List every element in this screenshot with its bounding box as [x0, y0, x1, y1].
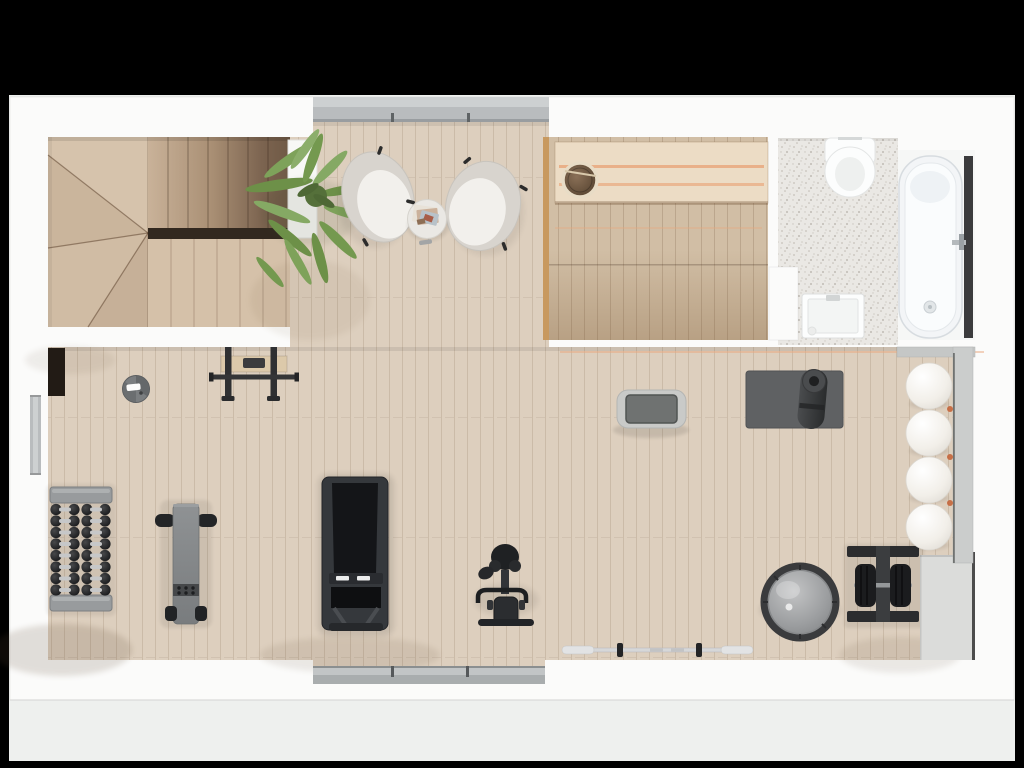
bath-wall-block — [769, 267, 798, 340]
wall-shadow — [313, 122, 549, 126]
wall-shadow — [48, 137, 52, 327]
window-mullion — [391, 666, 394, 677]
gym — [0, 346, 984, 684]
bathtub — [898, 150, 975, 340]
stair-gap — [148, 228, 290, 239]
yoga-mat — [746, 368, 843, 430]
stability-ball — [906, 457, 952, 503]
wall-shadow — [48, 347, 920, 351]
corner-platform — [920, 552, 975, 660]
wall-hung-toilet — [825, 137, 875, 197]
dumbbell-rack — [46, 484, 116, 616]
left-window — [30, 395, 41, 475]
balance-dome — [760, 565, 840, 639]
tub-dark-strip — [964, 156, 973, 338]
window-mullion — [391, 113, 394, 122]
wall-seam — [10, 699, 1014, 701]
window-mullion — [467, 113, 470, 122]
wall-niche — [48, 348, 65, 396]
barbell-collar — [696, 643, 702, 657]
flat-bench — [155, 500, 217, 628]
floor-seam — [549, 264, 768, 266]
floorplan-canvas — [0, 0, 1024, 768]
sauna-wall-edge — [543, 137, 549, 340]
bottom-window — [313, 666, 545, 684]
treadmill-belt — [332, 483, 378, 574]
sauna — [543, 137, 768, 340]
stability-ball — [906, 504, 952, 550]
bathroom — [769, 137, 975, 345]
treadmill — [318, 474, 394, 636]
plate-rack — [844, 544, 924, 628]
top-window — [313, 97, 549, 122]
flush-plate — [838, 137, 862, 140]
tub-shading — [910, 171, 950, 203]
stability-ball — [906, 410, 952, 456]
barbell-collar — [617, 643, 623, 657]
floorplan-render — [0, 0, 1024, 768]
step-platform — [613, 390, 689, 438]
stability-ball — [906, 363, 952, 409]
sauna-bucket — [563, 163, 597, 197]
basin-faucet — [826, 295, 840, 301]
floor-shading — [25, 346, 115, 374]
glow-strip — [555, 227, 762, 229]
wall-shadow — [48, 137, 290, 141]
window-mullion — [466, 666, 469, 677]
air-purifier — [123, 376, 150, 403]
toilet-bowl — [835, 157, 865, 191]
floor-shading — [549, 250, 768, 340]
washbasin — [802, 294, 864, 338]
